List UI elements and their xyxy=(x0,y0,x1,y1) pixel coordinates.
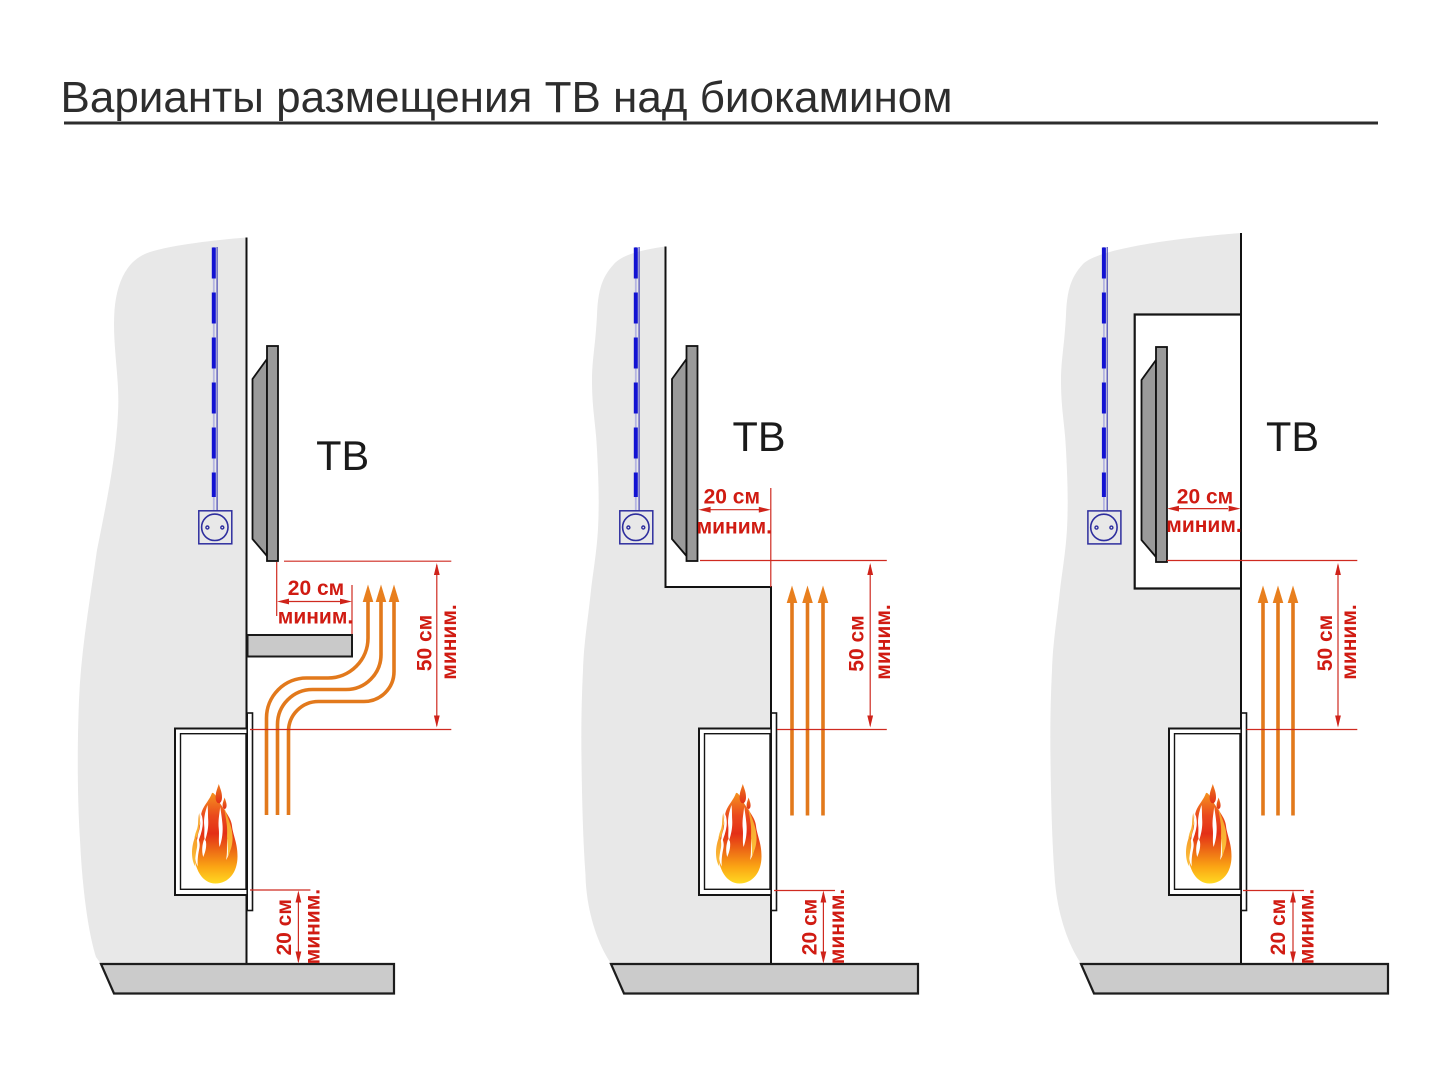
svg-text:миним.: миним. xyxy=(302,889,325,964)
svg-text:миним.: миним. xyxy=(1295,889,1318,964)
svg-text:миним.: миним. xyxy=(697,516,772,539)
svg-text:20 см: 20 см xyxy=(1177,486,1233,509)
svg-text:миним.: миним. xyxy=(826,889,849,964)
svg-text:миним.: миним. xyxy=(872,604,895,679)
svg-text:20 см: 20 см xyxy=(288,577,344,600)
svg-text:миним.: миним. xyxy=(1338,604,1361,679)
svg-text:миним.: миним. xyxy=(1166,514,1241,537)
svg-text:ТВ: ТВ xyxy=(1266,413,1319,460)
svg-text:ТВ: ТВ xyxy=(316,432,369,479)
svg-text:Варианты размещения ТВ над био: Варианты размещения ТВ над биокамином xyxy=(61,73,953,122)
svg-text:50 см: 50 см xyxy=(1314,615,1337,671)
svg-text:50 см: 50 см xyxy=(413,615,436,671)
svg-text:миним.: миним. xyxy=(278,606,353,629)
svg-text:50 см: 50 см xyxy=(846,615,869,671)
svg-text:миним.: миним. xyxy=(438,604,461,679)
svg-text:ТВ: ТВ xyxy=(732,413,785,460)
svg-text:20 см: 20 см xyxy=(704,486,760,509)
svg-text:20 см: 20 см xyxy=(273,899,296,955)
svg-text:20 см: 20 см xyxy=(1267,899,1290,955)
svg-text:20 см: 20 см xyxy=(798,899,821,955)
